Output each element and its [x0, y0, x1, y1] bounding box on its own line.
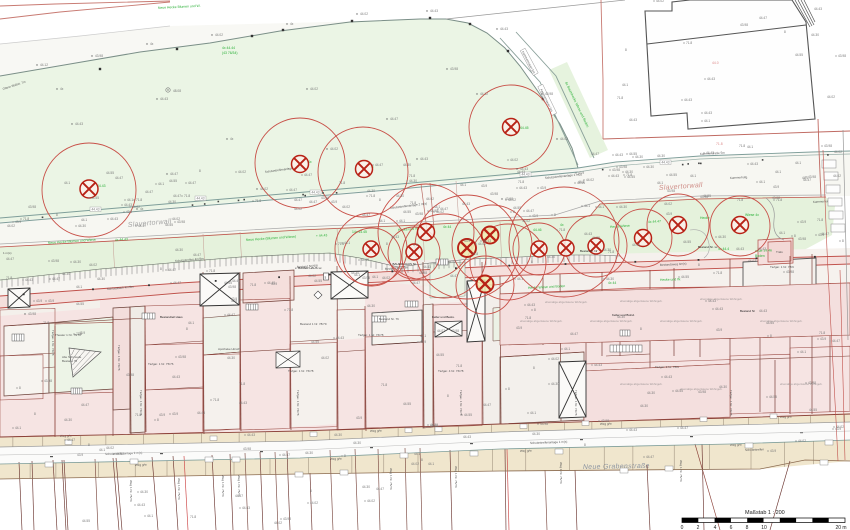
svg-text:44.30: 44.30	[78, 224, 86, 228]
svg-text:44.02: 44.02	[310, 87, 318, 91]
svg-text:44.47: 44.47	[282, 453, 290, 457]
svg-text:Trafo: Trafo	[776, 250, 783, 254]
svg-text:44.43: 44.43	[462, 202, 470, 206]
svg-text:44.02: 44.02	[664, 202, 672, 206]
svg-text:Weg 1 Nr. 75/76: Weg 1 Nr. 75/76	[221, 475, 225, 497]
svg-text:44.30: 44.30	[647, 391, 655, 395]
svg-text:44.30: 44.30	[62, 272, 70, 276]
svg-text:71.8: 71.8	[817, 218, 823, 222]
svg-text:43.98: 43.98	[808, 175, 816, 179]
svg-text:8: 8	[534, 308, 536, 312]
svg-text:44.55: 44.55	[403, 210, 411, 214]
svg-text:44.02: 44.02	[7, 224, 15, 228]
svg-text:44.02: 44.02	[508, 198, 516, 202]
svg-text:44.47: 44.47	[173, 281, 181, 285]
svg-text:44.43: 44.43	[336, 336, 344, 340]
svg-text:44.30: 44.30	[635, 155, 643, 159]
svg-text:4x 44.47: 4x 44.47	[648, 219, 661, 224]
svg-text:43.98: 43.98	[612, 168, 620, 172]
svg-text:44.1: 44.1	[399, 219, 405, 223]
svg-text:43.98: 43.98	[601, 419, 609, 423]
svg-text:2: 2	[697, 525, 700, 530]
svg-text:44.43: 44.43	[242, 506, 250, 510]
svg-text:44.43: 44.43	[611, 174, 619, 178]
svg-text:43.9: 43.9	[356, 416, 362, 420]
svg-text:71.8: 71.8	[338, 242, 344, 246]
svg-text:71.8: 71.8	[136, 198, 142, 202]
svg-text:43.98: 43.98	[838, 54, 846, 58]
svg-text:4x: 4x	[230, 137, 234, 141]
svg-text:44.47: 44.47	[362, 213, 370, 217]
svg-text:44.43: 44.43	[110, 217, 118, 221]
svg-text:44.12: 44.12	[40, 63, 48, 67]
svg-text:44.47: 44.47	[309, 200, 317, 204]
svg-text:44.47: 44.47	[52, 277, 60, 281]
svg-text:44.47: 44.47	[289, 188, 297, 192]
svg-text:8: 8	[199, 169, 201, 173]
svg-text:44.30: 44.30	[619, 205, 627, 209]
svg-text:44.43: 44.43	[662, 161, 670, 165]
svg-text:8: 8	[625, 48, 627, 52]
svg-text:71.8: 71.8	[250, 283, 256, 287]
svg-text:44.43: 44.43	[632, 243, 640, 247]
svg-text:ehemalige abgerissene Wohngeb.: ehemalige abgerissene Wohngeb.	[620, 299, 663, 303]
svg-text:44.43: 44.43	[92, 208, 100, 212]
svg-text:44.1: 44.1	[99, 448, 105, 452]
svg-text:Tiefgar. 1 Nr. 76/78: Tiefgar. 1 Nr. 76/78	[51, 330, 55, 356]
svg-text:Weg 1 Nr. 75/76: Weg 1 Nr. 75/76	[559, 462, 563, 484]
svg-text:44.02: 44.02	[551, 357, 559, 361]
svg-text:Weg 1 Nr. 75/76: Weg 1 Nr. 75/76	[177, 478, 181, 500]
svg-text:44.43: 44.43	[239, 401, 247, 405]
svg-text:+ 44.43: + 44.43	[316, 233, 328, 238]
svg-text:71.8: 71.8	[239, 382, 245, 386]
svg-text:Bestand Nr. 76: Bestand Nr. 76	[379, 317, 399, 321]
svg-text:44.1: 44.1	[64, 181, 70, 185]
svg-text:44.1: 44.1	[158, 182, 164, 186]
svg-text:44.47: 44.47	[570, 332, 578, 336]
svg-text:44.55: 44.55	[436, 353, 444, 357]
svg-text:43.98: 43.98	[798, 237, 806, 241]
svg-text:44.02: 44.02	[437, 329, 445, 333]
svg-text:43.98: 43.98	[808, 381, 816, 385]
svg-text:71.8: 71.8	[409, 174, 415, 178]
svg-text:8: 8	[784, 30, 786, 34]
svg-text:43.98: 43.98	[772, 196, 780, 200]
svg-text:Tiefgar. 1 Nr. 76/78: Tiefgar. 1 Nr. 76/78	[296, 390, 300, 416]
svg-text:44.47: 44.47	[375, 163, 383, 167]
svg-text:43.9: 43.9	[773, 185, 779, 189]
svg-text:x. BAUER HAUS xx: x. BAUER HAUS xx	[295, 266, 322, 270]
svg-text:44.47: 44.47	[67, 438, 75, 442]
svg-text:44.45: 44.45	[520, 126, 529, 130]
svg-text:8: 8	[640, 327, 642, 331]
svg-text:44.55: 44.55	[681, 275, 689, 279]
svg-text:44.30: 44.30	[367, 189, 375, 193]
svg-text:43.98: 43.98	[362, 276, 370, 280]
svg-text:44.30: 44.30	[657, 154, 665, 158]
svg-text:44.47: 44.47	[232, 279, 240, 283]
svg-text:Theater 1 Nr. 75/76: Theater 1 Nr. 75/76	[55, 333, 81, 337]
svg-text:(43 76/34): (43 76/34)	[222, 51, 237, 55]
svg-text:44.55: 44.55	[766, 321, 774, 325]
svg-text:44.1: 44.1	[598, 205, 604, 209]
svg-text:44.30: 44.30	[362, 485, 370, 489]
svg-text:44.43: 44.43	[584, 232, 592, 236]
svg-text:44.43: 44.43	[160, 97, 168, 101]
svg-text:44.02: 44.02	[89, 263, 97, 267]
svg-text:44.55: 44.55	[809, 408, 817, 412]
svg-text:44.1: 44.1	[530, 411, 536, 415]
svg-text:44.02: 44.02	[798, 439, 806, 443]
svg-text:4x: 4x	[150, 42, 154, 46]
svg-text:44.43: 44.43	[124, 203, 132, 207]
svg-text:Weg g/w: Weg g/w	[780, 415, 793, 419]
svg-text:44.30: 44.30	[305, 451, 313, 455]
svg-text:8: 8	[554, 213, 556, 217]
svg-text:44.1: 44.1	[76, 285, 82, 289]
svg-text:Weg g/w: Weg g/w	[370, 429, 383, 433]
svg-text:44.55: 44.55	[769, 395, 777, 399]
svg-text:44.47: 44.47	[6, 257, 14, 261]
svg-text:43.9: 43.9	[540, 186, 546, 190]
svg-text:44.1: 44.1	[344, 241, 350, 245]
svg-text:44.47: 44.47	[188, 181, 196, 185]
svg-text:44.47: 44.47	[173, 194, 181, 198]
svg-text:Keller und Bstnd.: Keller und Bstnd.	[612, 313, 635, 317]
svg-text:43.98: 43.98	[545, 92, 553, 96]
svg-text:44.02: 44.02	[330, 147, 338, 151]
svg-text:8: 8	[770, 334, 772, 338]
svg-text:44.47: 44.47	[81, 403, 89, 407]
svg-text:44.43: 44.43	[483, 239, 491, 243]
svg-text:44.43: 44.43	[463, 435, 471, 439]
svg-text:Weg 1 Nr. 75/76: Weg 1 Nr. 75/76	[129, 480, 133, 502]
svg-text:44.43: 44.43	[736, 247, 744, 251]
svg-text:43.9: 43.9	[36, 299, 42, 303]
svg-text:44.30: 44.30	[353, 441, 361, 445]
svg-text:Tiefgar. 1 Nr. 78/9: Tiefgar. 1 Nr. 78/9	[770, 265, 794, 269]
svg-text:44.43: 44.43	[197, 197, 205, 201]
svg-text:44.30: 44.30	[97, 277, 105, 281]
svg-text:44.30: 44.30	[367, 304, 375, 308]
svg-text:44.55: 44.55	[361, 258, 369, 262]
svg-text:43.98: 43.98	[44, 379, 52, 383]
svg-text:ehemalige abgerissene Wohngeb.: ehemalige abgerissene Wohngeb.	[780, 382, 823, 386]
svg-text:Wiese 4x: Wiese 4x	[745, 213, 759, 217]
svg-text:44.47: 44.47	[168, 268, 176, 272]
svg-text:Weg 1 Nr. 75/76: Weg 1 Nr. 75/76	[454, 466, 458, 488]
svg-text:44.47: 44.47	[390, 117, 398, 121]
svg-text:44.02: 44.02	[834, 150, 842, 154]
svg-text:8: 8	[186, 327, 188, 331]
svg-text:71.8: 71.8	[6, 276, 12, 280]
svg-text:44.02: 44.02	[656, 0, 664, 3]
svg-text:44.12: 44.12	[480, 92, 488, 96]
svg-text:44.1: 44.1	[414, 452, 420, 456]
svg-text:71.8: 71.8	[617, 96, 623, 100]
svg-text:Tiefgar. 1 Nr. 76/78: Tiefgar. 1 Nr. 76/78	[117, 345, 121, 371]
svg-text:44.30: 44.30	[175, 248, 183, 252]
svg-text:44.43: 44.43	[197, 411, 205, 415]
svg-text:Weg g/w: Weg g/w	[330, 457, 343, 461]
svg-text:44.43: 44.43	[707, 77, 715, 81]
svg-text:4x 44.44: 4x 44.44	[222, 46, 235, 50]
svg-text:44.47: 44.47	[235, 494, 243, 498]
svg-text:1 m(s): 1 m(s)	[3, 251, 12, 255]
svg-text:44.30: 44.30	[811, 33, 819, 37]
svg-text:ehemalige abgerissene Wohngeb.: ehemalige abgerissene Wohngeb.	[545, 300, 588, 304]
svg-text:43.98: 43.98	[415, 212, 423, 216]
svg-text:43.98: 43.98	[450, 67, 458, 71]
svg-text:44.47: 44.47	[450, 274, 458, 278]
svg-text:44.30: 44.30	[73, 260, 81, 264]
svg-text:43.98: 43.98	[321, 196, 329, 200]
svg-text:43.98: 43.98	[178, 355, 186, 359]
svg-text:44.47: 44.47	[821, 232, 829, 236]
svg-text:44.02: 44.02	[411, 462, 419, 466]
svg-text:4x: 4x	[140, 207, 144, 211]
svg-text:43.98: 43.98	[540, 422, 548, 426]
svg-text:44.43: 44.43	[750, 162, 758, 166]
svg-text:44.43: 44.43	[430, 9, 438, 13]
svg-text:Keller und Bests.: Keller und Bests.	[432, 315, 455, 319]
svg-text:44.47: 44.47	[170, 172, 178, 176]
svg-text:44.46: 44.46	[533, 228, 542, 232]
svg-text:71.8: 71.8	[190, 515, 196, 519]
svg-text:44.30: 44.30	[719, 385, 727, 389]
svg-text:44.43: 44.43	[629, 118, 637, 122]
svg-text:44.02: 44.02	[522, 219, 530, 223]
svg-text:43.98: 43.98	[126, 373, 134, 377]
svg-text:Bestand Nr: Bestand Nr	[740, 309, 755, 313]
svg-text:8: 8	[379, 198, 381, 202]
svg-text:44.30: 44.30	[640, 404, 648, 408]
svg-text:44.43: 44.43	[519, 186, 527, 190]
svg-text:43.9: 43.9	[820, 337, 826, 341]
svg-text:44.1: 44.1	[379, 219, 385, 223]
svg-text:71.8: 71.8	[184, 194, 190, 198]
svg-text:44.47: 44.47	[526, 209, 534, 213]
svg-text:43.98: 43.98	[51, 259, 59, 263]
svg-text:44.1: 44.1	[81, 218, 87, 222]
svg-text:44.1: 44.1	[354, 273, 360, 277]
svg-text:Bestandteil Haus: Bestandteil Haus	[160, 315, 183, 319]
svg-text:8: 8	[698, 263, 700, 267]
svg-text:0: 0	[681, 525, 684, 530]
svg-text:43.98: 43.98	[228, 285, 236, 289]
svg-text:44.55: 44.55	[165, 223, 173, 227]
svg-text:44.30: 44.30	[334, 433, 342, 437]
svg-text:44.1: 44.1	[564, 347, 570, 351]
svg-text:43.9: 43.9	[516, 326, 522, 330]
svg-text:43.9: 43.9	[331, 200, 337, 204]
svg-text:44.02: 44.02	[426, 197, 434, 201]
svg-text:71.8: 71.8	[255, 199, 261, 203]
svg-text:44.0: 44.0	[712, 61, 719, 65]
svg-text:44.55: 44.55	[464, 413, 472, 417]
svg-text:43.98: 43.98	[698, 390, 706, 394]
svg-text:44.55: 44.55	[91, 196, 99, 200]
svg-text:44.02: 44.02	[116, 452, 124, 456]
svg-text:43.9: 43.9	[716, 328, 722, 332]
svg-text:44.30: 44.30	[409, 179, 417, 183]
svg-text:Weg g/w: Weg g/w	[520, 449, 533, 453]
svg-text:44.1: 44.1	[428, 462, 434, 466]
svg-text:44.55: 44.55	[76, 302, 84, 306]
svg-text:44.47: 44.47	[412, 281, 420, 285]
svg-text:44.43: 44.43	[527, 303, 535, 307]
svg-text:44.02: 44.02	[360, 12, 368, 16]
svg-text:Tiefgar. 1 Nr. 78/9: Tiefgar. 1 Nr. 78/9	[655, 365, 679, 369]
svg-text:44.43: 44.43	[517, 170, 525, 174]
svg-text:ehemalige abgerissene Wohngeb.: ehemalige abgerissene Wohngeb.	[660, 319, 703, 323]
svg-text:44.55: 44.55	[403, 402, 411, 406]
svg-text:44.1: 44.1	[372, 275, 378, 279]
svg-text:44.02: 44.02	[367, 499, 375, 503]
svg-text:44.1: 44.1	[775, 170, 781, 174]
svg-text:44.02: 44.02	[260, 187, 268, 191]
svg-text:44.30: 44.30	[547, 255, 555, 259]
svg-text:44.1: 44.1	[779, 231, 785, 235]
svg-text:44.43: 44.43	[25, 278, 33, 282]
svg-text:44.47: 44.47	[304, 173, 312, 177]
svg-text:71.8: 71.8	[819, 331, 825, 335]
svg-text:43.9: 43.9	[481, 184, 487, 188]
svg-text:Hecke und W.: Hecke und W.	[660, 277, 681, 282]
svg-text:43.9: 43.9	[271, 282, 277, 286]
svg-text:8: 8	[508, 387, 510, 391]
svg-text:44.02: 44.02	[238, 170, 246, 174]
svg-text:43.98: 43.98	[283, 517, 291, 521]
svg-text:Tiefgar. 1 Nr. 76/78: Tiefgar. 1 Nr. 76/78	[729, 390, 733, 416]
svg-text:43.98: 43.98	[28, 205, 36, 209]
svg-text:8: 8	[310, 489, 312, 493]
svg-text:44.02: 44.02	[172, 217, 180, 221]
svg-text:43.98: 43.98	[95, 54, 103, 58]
svg-text:44.02: 44.02	[310, 501, 318, 505]
svg-text:71.8: 71.8	[213, 398, 219, 402]
svg-text:Weg 1 Nr. 75/76: Weg 1 Nr. 75/76	[389, 468, 393, 490]
svg-text:Tiefgar. 1 Nr. 76/78: Tiefgar. 1 Nr. 76/78	[574, 390, 578, 416]
svg-text:44.02: 44.02	[436, 210, 444, 214]
svg-text:48.08: 48.08	[173, 89, 181, 93]
svg-text:71.8: 71.8	[23, 217, 29, 221]
svg-text:44.30: 44.30	[551, 382, 559, 386]
svg-text:44.02: 44.02	[827, 95, 835, 99]
svg-text:43.9: 43.9	[77, 453, 83, 457]
svg-text:71.8: 71.8	[43, 321, 49, 325]
svg-text:44.1: 44.1	[622, 83, 628, 87]
svg-text:44.30: 44.30	[603, 248, 611, 252]
svg-text:8: 8	[157, 418, 159, 422]
svg-text:44.55: 44.55	[106, 171, 114, 175]
svg-text:44.30: 44.30	[430, 423, 438, 427]
svg-text:ehemalige abgerissene Wohngeb.: ehemalige abgerissene Wohngeb.	[700, 297, 743, 301]
svg-text:Tiefgar. 1 Nr. 76/78: Tiefgar. 1 Nr. 76/78	[139, 390, 143, 416]
svg-text:44.55: 44.55	[795, 53, 803, 57]
svg-text:44.47: 44.47	[227, 313, 235, 317]
svg-text:43.9: 43.9	[578, 171, 584, 175]
svg-text:44.47: 44.47	[145, 190, 153, 194]
svg-text:44.55: 44.55	[82, 519, 90, 523]
svg-text:44.43: 44.43	[715, 307, 723, 311]
svg-text:71.8: 71.8	[287, 308, 293, 312]
svg-text:4x 44: 4x 44	[443, 225, 451, 229]
svg-text:8: 8	[746, 525, 749, 530]
svg-text:43.9: 43.9	[172, 412, 178, 416]
svg-text:43.98: 43.98	[740, 23, 748, 27]
svg-text:8: 8	[584, 443, 586, 447]
svg-text:43.98: 43.98	[419, 271, 427, 275]
svg-text:44.1: 44.1	[690, 174, 696, 178]
svg-text:44.43: 44.43	[664, 375, 672, 379]
svg-text:8: 8	[344, 454, 346, 458]
svg-text:44.1: 44.1	[759, 180, 765, 184]
svg-text:43.9: 43.9	[15, 220, 21, 224]
svg-text:44.1: 44.1	[704, 119, 710, 123]
svg-text:4x 44: 4x 44	[608, 281, 616, 285]
svg-text:44.30: 44.30	[646, 165, 654, 169]
svg-text:44.30: 44.30	[64, 418, 72, 422]
svg-text:43.98: 43.98	[619, 165, 627, 169]
svg-text:71.8: 71.8	[339, 181, 345, 185]
svg-text:8: 8	[386, 242, 388, 246]
svg-text:43.9: 43.9	[666, 212, 672, 216]
svg-text:44.1: 44.1	[795, 161, 801, 165]
svg-text:44.30: 44.30	[168, 200, 176, 204]
svg-text:ehemalige abgerissene Wohngeb.: ehemalige abgerissene Wohngeb.	[620, 382, 663, 386]
svg-text:44.43: 44.43	[684, 98, 692, 102]
svg-text:43.9: 43.9	[835, 427, 841, 431]
svg-text:44.55: 44.55	[683, 240, 691, 244]
svg-text:44.55: 44.55	[703, 194, 711, 198]
svg-text:Weg 1 Nr. 75/76: Weg 1 Nr. 75/76	[679, 460, 683, 482]
svg-text:44.43: 44.43	[391, 235, 399, 239]
svg-text:44.1: 44.1	[460, 183, 466, 187]
svg-text:44.47: 44.47	[646, 455, 654, 459]
svg-text:44.43: 44.43	[759, 309, 767, 313]
svg-text:Tiefgar. 1 Nr. 76/78: Tiefgar. 1 Nr. 76/78	[288, 369, 314, 373]
svg-text:44.55: 44.55	[314, 279, 322, 283]
svg-text:44.30: 44.30	[718, 235, 726, 239]
svg-text:43.9: 43.9	[770, 449, 776, 453]
svg-text:44.47: 44.47	[138, 224, 146, 228]
svg-text:44.43: 44.43	[75, 122, 83, 126]
svg-text:71.8: 71.8	[209, 269, 215, 273]
svg-text:43.98: 43.98	[451, 329, 459, 333]
svg-text:I. BAUER HAUS Nr: I. BAUER HAUS Nr	[390, 262, 416, 266]
svg-text:Tiefgar. 1 Nr. 75/76: Tiefgar. 1 Nr. 75/76	[148, 362, 174, 366]
svg-text:44.02: 44.02	[510, 158, 518, 162]
svg-text:71.8: 71.8	[456, 364, 462, 368]
svg-text:44.55: 44.55	[669, 173, 677, 177]
svg-text:43.98: 43.98	[667, 189, 675, 193]
svg-text:43.9: 43.9	[231, 297, 237, 301]
svg-text:44.02: 44.02	[274, 521, 282, 525]
svg-text:71.8: 71.8	[559, 228, 565, 232]
svg-text:44.47: 44.47	[591, 152, 599, 156]
svg-text:44.47: 44.47	[832, 339, 840, 343]
svg-text:43.98: 43.98	[28, 312, 36, 316]
svg-text:71.8: 71.8	[381, 383, 387, 387]
svg-text:71.8: 71.8	[472, 252, 478, 256]
svg-text:44.55: 44.55	[311, 340, 319, 344]
svg-text:8: 8	[447, 394, 449, 398]
svg-text:44.43: 44.43	[704, 111, 712, 115]
svg-text:44.43: 44.43	[172, 375, 180, 379]
svg-text:44.1: 44.1	[747, 145, 753, 149]
